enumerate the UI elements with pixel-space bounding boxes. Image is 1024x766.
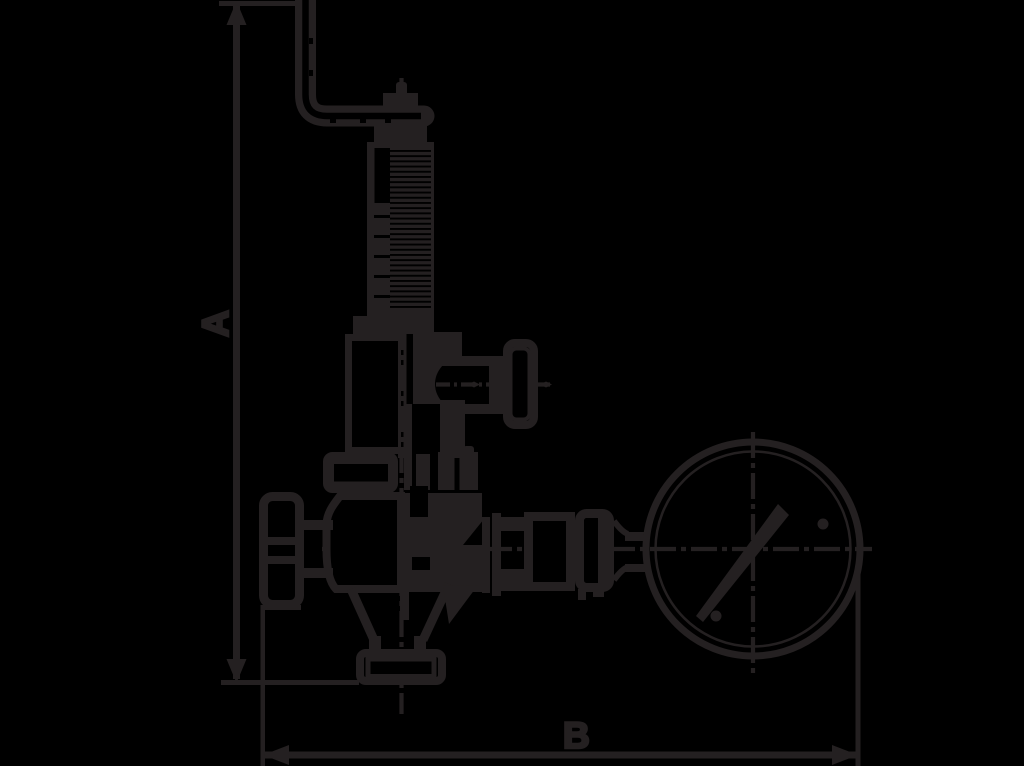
svg-text:B: B [563, 715, 590, 756]
svg-text:A: A [195, 310, 236, 337]
